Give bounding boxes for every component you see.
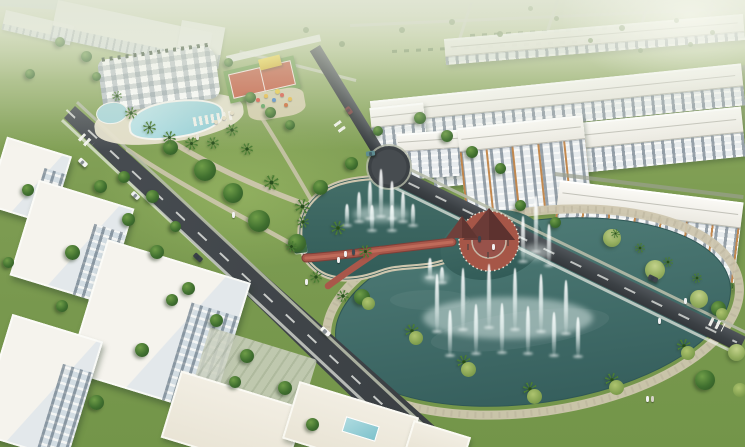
person-figure — [232, 212, 235, 218]
person-figure — [337, 257, 340, 263]
person-figure — [646, 396, 649, 402]
person-figure — [658, 318, 661, 324]
person-figure — [492, 244, 495, 250]
person-figure — [305, 279, 308, 285]
person-figure — [196, 134, 199, 140]
person-figure — [684, 298, 687, 304]
aerial-masterplan-render — [0, 0, 745, 447]
person-figure — [344, 251, 347, 257]
person-figure — [352, 249, 355, 255]
people-layer — [0, 0, 745, 447]
person-figure — [478, 236, 481, 242]
person-figure — [651, 396, 654, 402]
